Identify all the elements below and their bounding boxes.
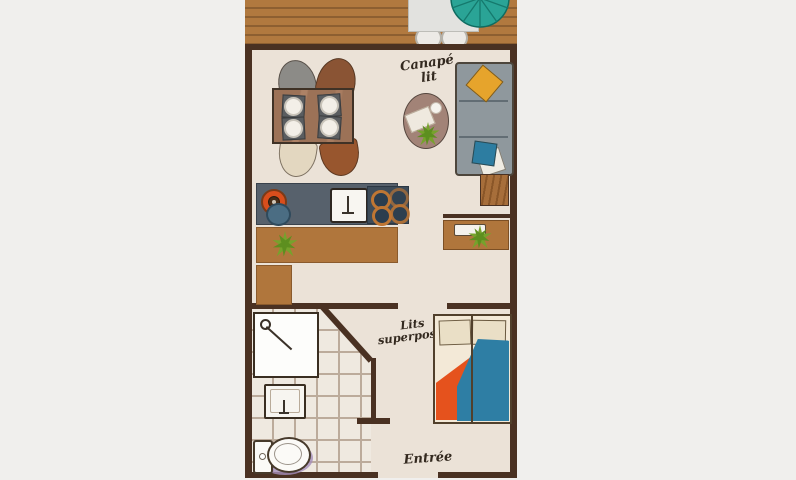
sofa-bed bbox=[455, 62, 514, 176]
placemat bbox=[317, 115, 342, 140]
bathroom-sink bbox=[264, 384, 306, 419]
desk-half-wall bbox=[443, 214, 512, 218]
label-sofa-bed-line2: lit bbox=[420, 69, 438, 86]
wall-top bbox=[245, 44, 517, 50]
kitchen-sink bbox=[330, 188, 368, 223]
faucet-base bbox=[342, 212, 354, 214]
sink-basin bbox=[270, 389, 300, 413]
shower-hose-icon bbox=[266, 326, 293, 350]
toilet-bowl-inner bbox=[274, 443, 302, 465]
shower bbox=[253, 312, 319, 378]
pot-icon bbox=[266, 203, 291, 226]
pillow-yellow bbox=[465, 64, 503, 102]
plate-icon bbox=[319, 117, 339, 137]
placemat bbox=[317, 93, 342, 118]
parasol-icon bbox=[448, 0, 512, 30]
desk-object bbox=[454, 224, 486, 236]
burner-icon bbox=[372, 206, 392, 226]
wall-bathroom-cap bbox=[357, 418, 390, 424]
stove-cooktop bbox=[367, 186, 409, 224]
flush-button-icon bbox=[259, 453, 266, 460]
cup-icon bbox=[430, 102, 442, 114]
toilet-bowl bbox=[267, 437, 311, 473]
apartment-floor-plan: Canapé lit bbox=[245, 0, 517, 480]
wall-middle-right bbox=[447, 303, 517, 309]
burner-icon bbox=[390, 204, 410, 224]
kitchen-counter bbox=[256, 183, 398, 225]
placemat bbox=[281, 116, 305, 140]
bed bbox=[433, 314, 512, 424]
placemat bbox=[281, 94, 305, 118]
faucet-base bbox=[279, 412, 289, 414]
wall-bottom-right bbox=[438, 472, 517, 478]
plate-icon bbox=[284, 119, 304, 139]
plate-icon bbox=[284, 97, 304, 117]
plant-icon bbox=[272, 231, 298, 257]
kitchen-cabinet bbox=[256, 265, 292, 305]
bed-divider-line bbox=[471, 316, 473, 422]
wall-bathroom-vertical bbox=[371, 358, 376, 420]
dining-table bbox=[272, 88, 354, 144]
sofa-cushion-line bbox=[459, 136, 508, 138]
blanket-blue bbox=[457, 339, 509, 421]
kitchen-bar bbox=[256, 227, 398, 263]
pillow-blue bbox=[472, 141, 498, 167]
wall-left bbox=[245, 44, 252, 478]
desk bbox=[443, 220, 509, 250]
coffee-table bbox=[403, 93, 449, 149]
bed-pillow bbox=[439, 319, 472, 345]
faucet-icon bbox=[347, 196, 349, 213]
plate-icon bbox=[319, 95, 339, 115]
doormat bbox=[480, 174, 509, 206]
